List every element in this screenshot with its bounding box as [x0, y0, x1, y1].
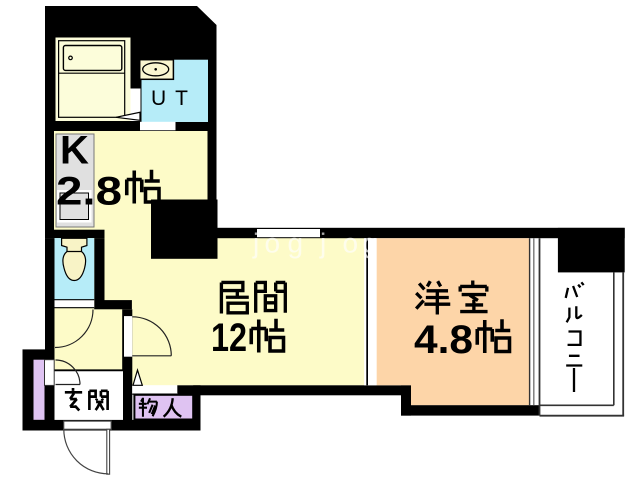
svg-text:2.8: 2.8 — [56, 170, 122, 214]
svg-text:K: K — [60, 129, 89, 173]
svg-text:12: 12 — [211, 316, 247, 360]
svg-text:4.8: 4.8 — [414, 318, 473, 362]
svg-text:UT: UT — [151, 87, 197, 110]
